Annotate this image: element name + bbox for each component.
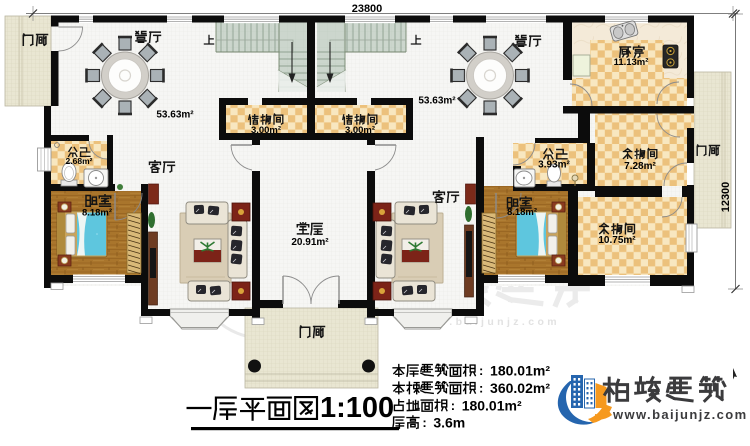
svg-text::: : bbox=[422, 415, 426, 430]
svg-text::: : bbox=[479, 363, 483, 378]
svg-text::: : bbox=[479, 380, 483, 395]
svg-text:www.baijunjz.com: www.baijunjz.com bbox=[612, 407, 748, 422]
svg-text:12300: 12300 bbox=[720, 182, 732, 213]
svg-text:11.13m²: 11.13m² bbox=[614, 57, 649, 68]
svg-text:3.00m²: 3.00m² bbox=[345, 125, 375, 136]
svg-text:2.68m²: 2.68m² bbox=[66, 156, 93, 166]
svg-text:3.6m: 3.6m bbox=[433, 414, 465, 430]
svg-text:180.01m²: 180.01m² bbox=[462, 397, 522, 413]
svg-text:8.18m²: 8.18m² bbox=[82, 207, 112, 218]
svg-text:23800: 23800 bbox=[352, 3, 383, 15]
svg-text:180.01m²: 180.01m² bbox=[490, 362, 550, 378]
svg-text:20.91m²: 20.91m² bbox=[291, 237, 329, 248]
svg-text::: : bbox=[451, 398, 455, 413]
svg-text:7.28m²: 7.28m² bbox=[624, 161, 656, 172]
svg-text:10.75m²: 10.75m² bbox=[598, 235, 636, 246]
svg-text:3.93m²: 3.93m² bbox=[538, 160, 570, 171]
svg-text:1:100: 1:100 bbox=[320, 392, 394, 424]
svg-text:3.00m²: 3.00m² bbox=[251, 125, 281, 136]
svg-text:360.02m²: 360.02m² bbox=[490, 380, 550, 396]
svg-text:53.63m²: 53.63m² bbox=[156, 110, 194, 121]
svg-text:53.63m²: 53.63m² bbox=[418, 96, 456, 107]
svg-text:8.18m²: 8.18m² bbox=[507, 207, 537, 218]
